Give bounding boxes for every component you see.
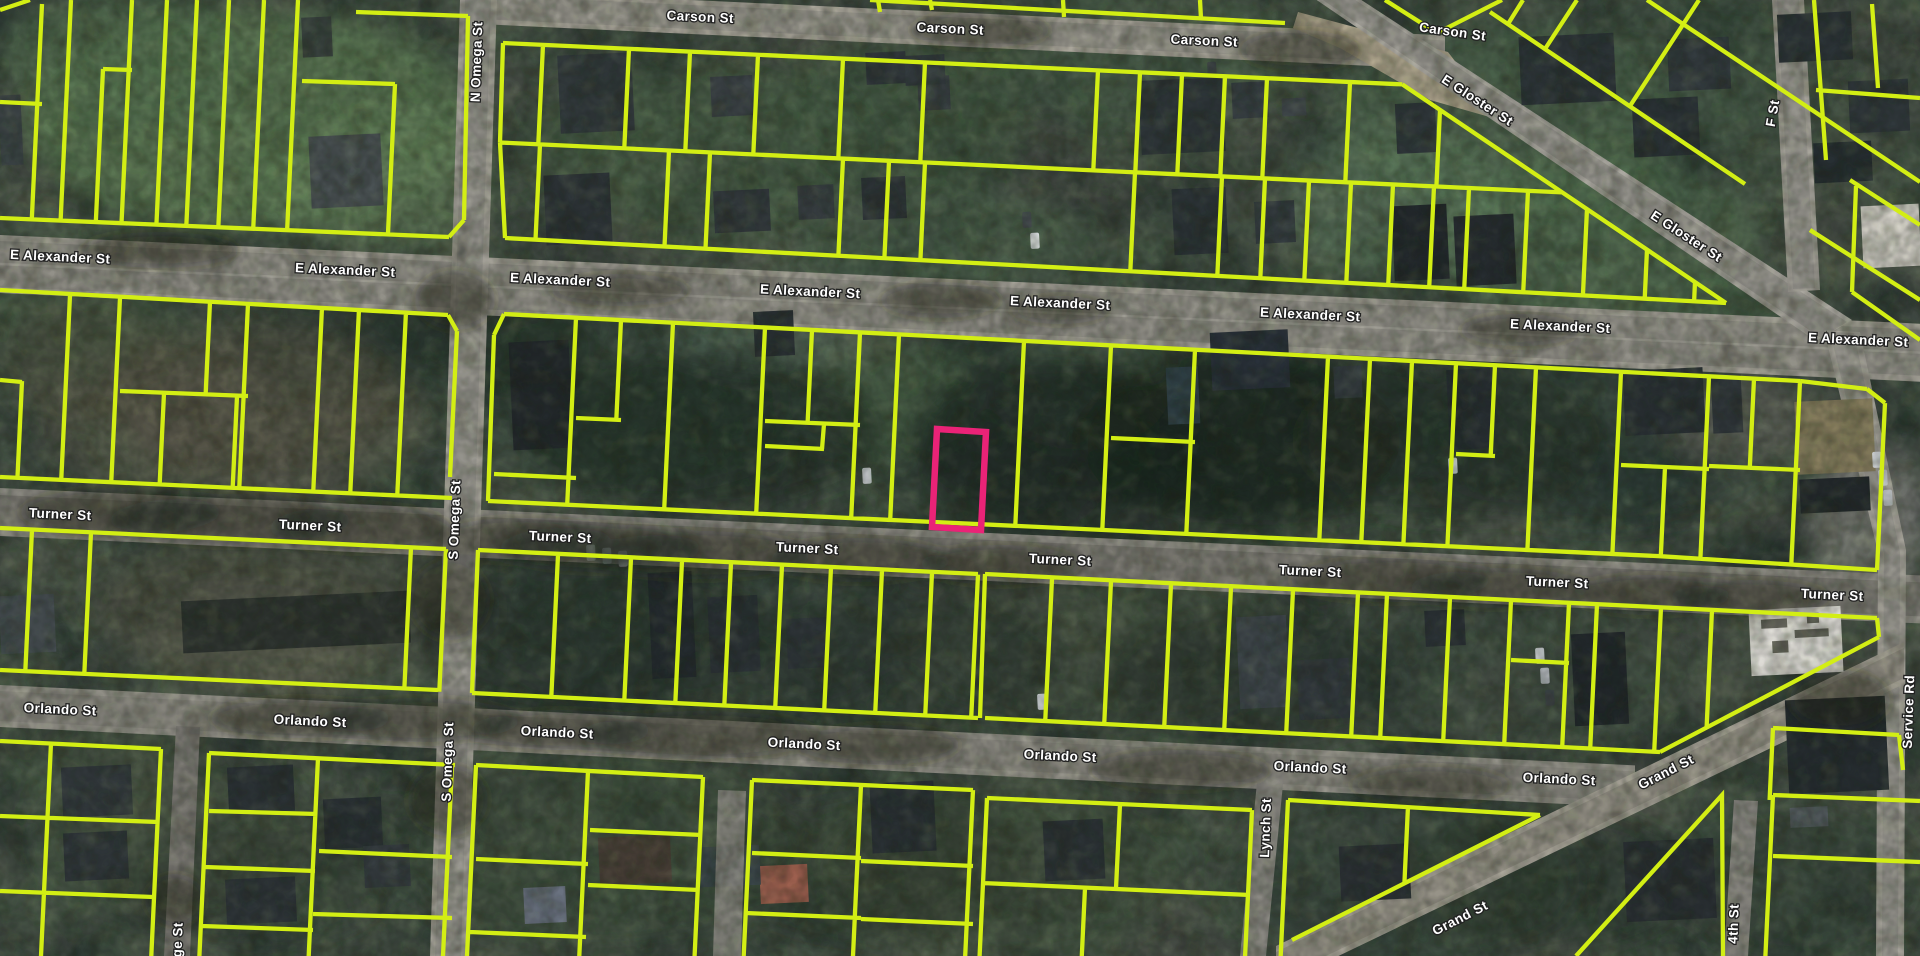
svg-text:Carson St: Carson St	[916, 20, 984, 38]
svg-text:Turner St: Turner St	[1526, 573, 1589, 591]
svg-text:Carson St: Carson St	[1170, 32, 1238, 50]
svg-text:Turner St: Turner St	[1279, 562, 1342, 580]
svg-text:S Omega St: S Omega St	[439, 722, 457, 802]
svg-text:Lynch St: Lynch St	[1257, 798, 1274, 858]
svg-text:N Omega St: N Omega St	[468, 21, 486, 102]
svg-text:Service Rd: Service Rd	[1900, 675, 1918, 749]
svg-text:4th St: 4th St	[1725, 904, 1741, 945]
svg-text:Turner St: Turner St	[1801, 586, 1864, 604]
svg-text:ge St: ge St	[169, 922, 185, 956]
svg-text:Turner St: Turner St	[1029, 551, 1092, 569]
svg-text:Turner St: Turner St	[776, 539, 839, 557]
svg-text:Carson St: Carson St	[666, 8, 734, 26]
svg-text:S Omega St: S Omega St	[446, 480, 464, 560]
svg-text:Turner St: Turner St	[29, 505, 92, 523]
svg-text:Turner St: Turner St	[279, 517, 342, 535]
svg-text:Turner St: Turner St	[529, 528, 592, 546]
